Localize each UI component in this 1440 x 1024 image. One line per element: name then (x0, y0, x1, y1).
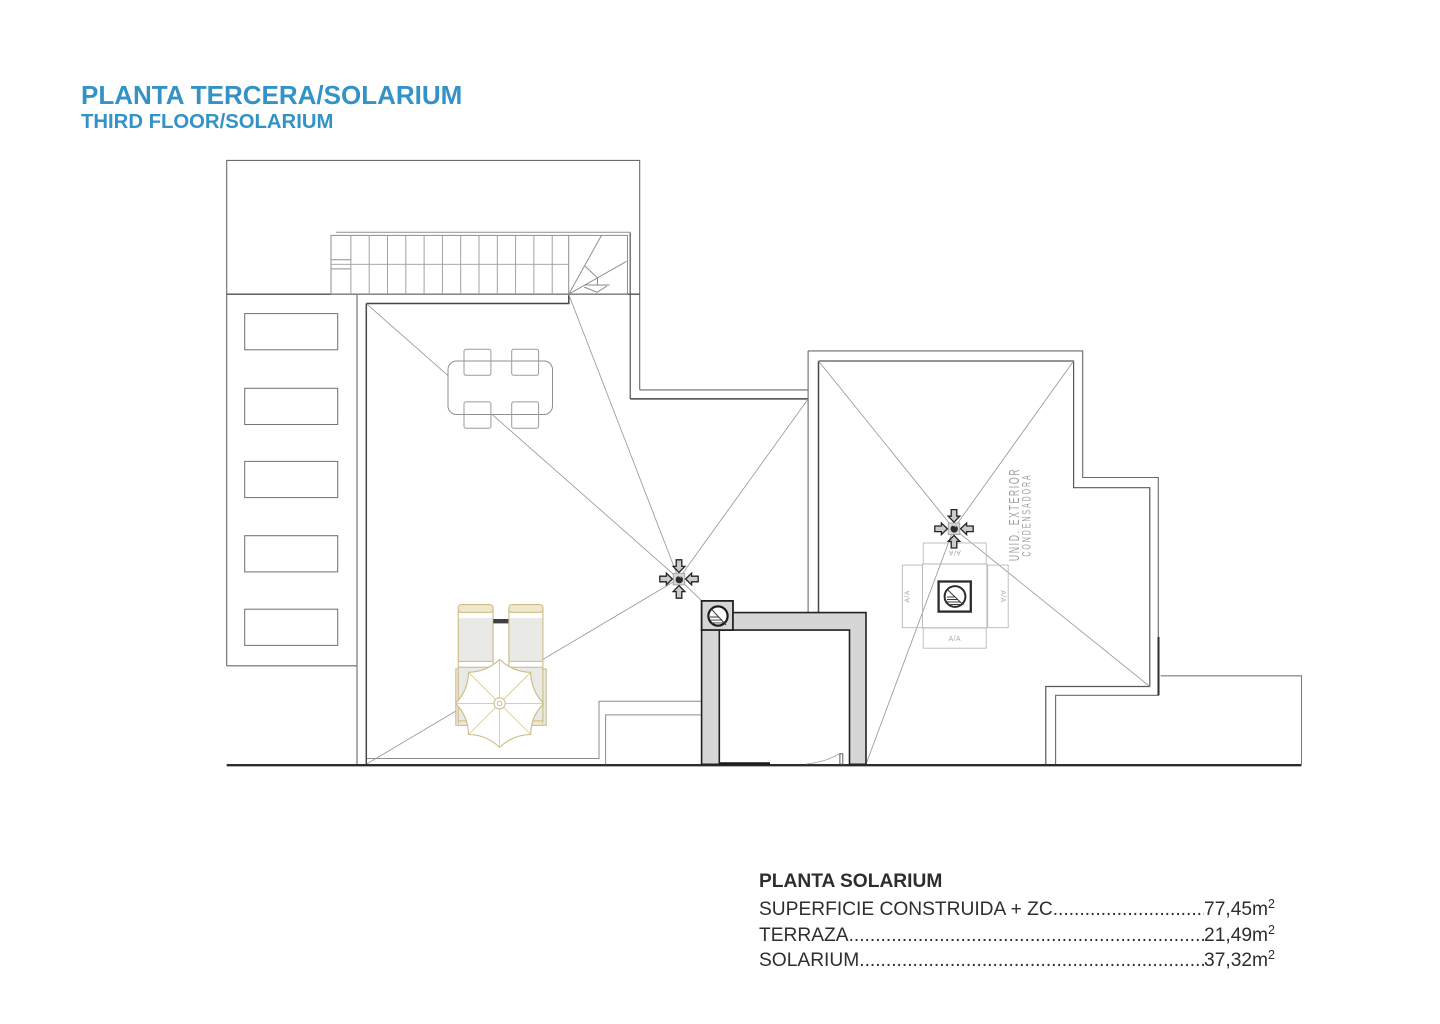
svg-text:A/A: A/A (905, 590, 912, 602)
svg-text:CONDENSADORA: CONDENSADORA (1021, 473, 1034, 556)
svg-text:A/A: A/A (948, 549, 960, 556)
svg-text:A/A: A/A (948, 636, 960, 643)
svg-text:A/A: A/A (999, 590, 1006, 602)
